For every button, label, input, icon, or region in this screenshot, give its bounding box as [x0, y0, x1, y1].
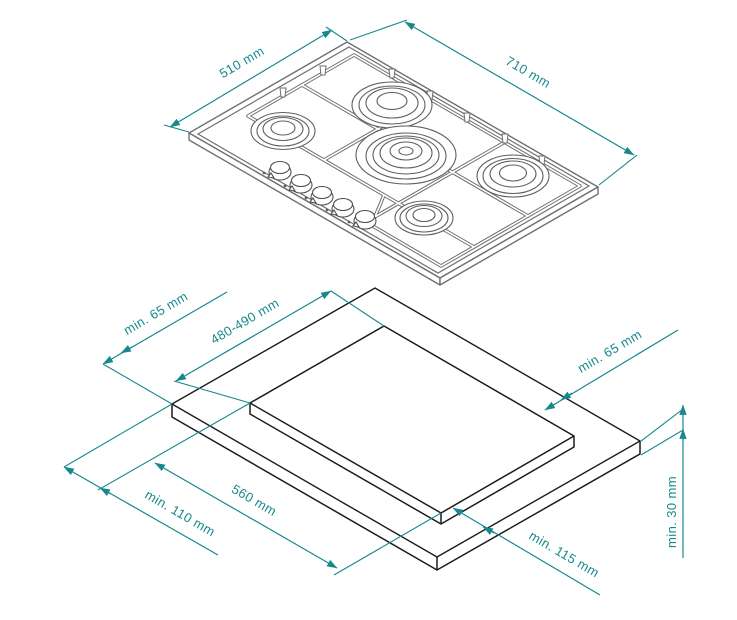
burner-front-small [395, 201, 453, 235]
installation-diagram: 510 mm 710 mm min. 65 mm 480-490 mm [0, 0, 737, 620]
clearance-back-left-label: min. 65 mm [121, 288, 191, 337]
front-clearance-right-label: min. 115 mm [527, 528, 602, 580]
hob-depth-label: 510 mm [217, 43, 267, 81]
clearance-back-right-label: min. 65 mm [575, 326, 645, 375]
hob-width-label: 710 mm [503, 53, 553, 91]
burner-front-left-medium [251, 113, 315, 150]
burner-center-wok [356, 126, 456, 184]
cutout-depth-label: 480-490 mm [208, 295, 282, 347]
burner-back-left-large [352, 82, 432, 128]
worktop-thickness-label: min. 30 mm [664, 476, 679, 548]
front-clearance-left-label: min. 110 mm [143, 487, 218, 539]
installation-diagram-page: 510 mm 710 mm min. 65 mm 480-490 mm [0, 0, 737, 620]
burner-right-medium [477, 155, 549, 197]
cutout-width-label: 560 mm [229, 481, 279, 519]
